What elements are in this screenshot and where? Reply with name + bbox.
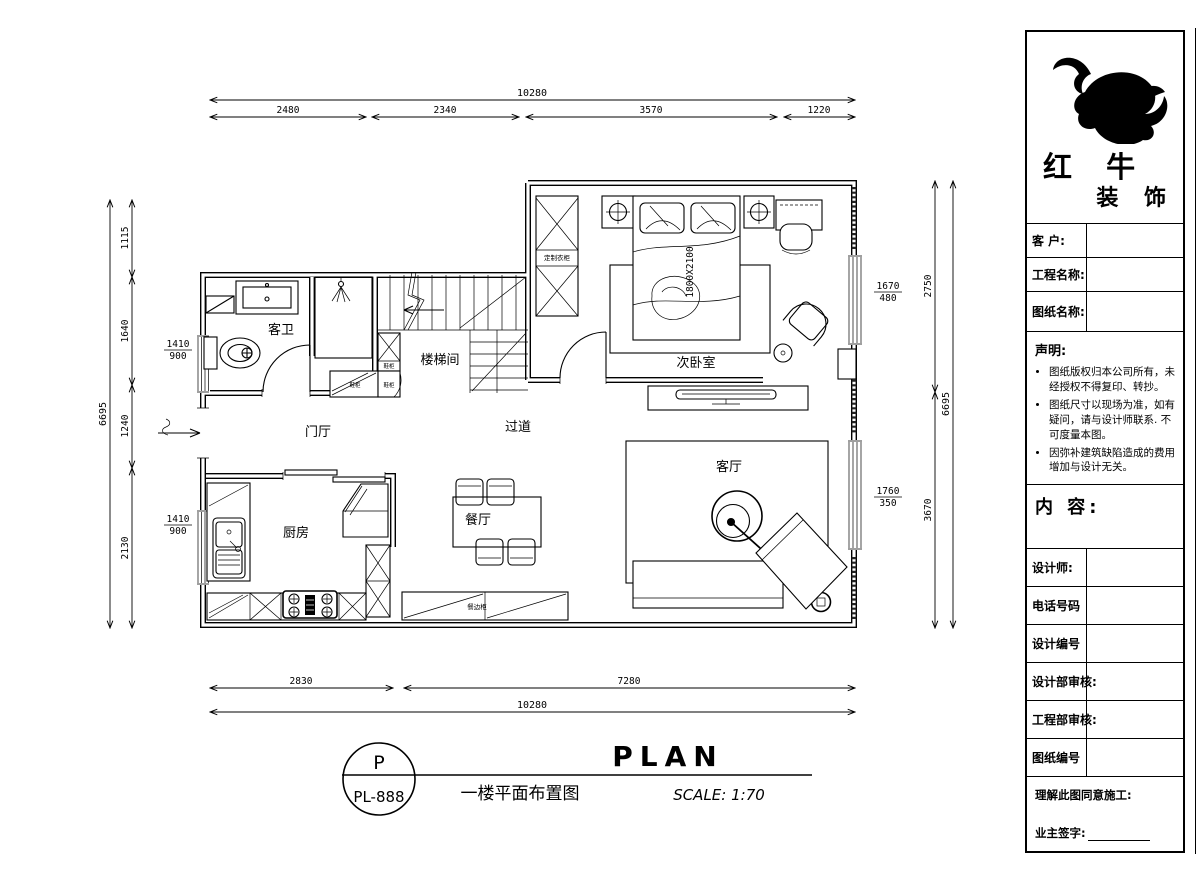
dim-left-4: 2130 [120, 536, 131, 559]
field-label-client: 客 户: [1027, 224, 1087, 257]
field-label-design-review: 设计部审核: [1027, 663, 1087, 700]
svg-text:350: 350 [879, 498, 896, 509]
field-row-design-review: 设计部审核: [1027, 663, 1183, 701]
armchair [783, 296, 834, 346]
signature-line [1088, 828, 1150, 841]
room-label-kitchen: 厨房 [283, 525, 309, 541]
room-label-second-bedroom: 次卧室 [676, 355, 715, 371]
shower [315, 277, 372, 358]
dim-top-2: 2340 [434, 105, 457, 116]
nightstand-left [602, 196, 635, 228]
room-label-dining-room: 餐厅 [465, 512, 491, 528]
sheet-border-line [1195, 28, 1196, 854]
dim-left-total: 6695 [98, 402, 109, 426]
field-label-phone: 电话号码 [1027, 587, 1087, 624]
field-label-project: 工程名称: [1027, 258, 1087, 291]
svg-text:1410: 1410 [167, 514, 190, 525]
callout-bedroom-window: 1670 480 [874, 281, 902, 304]
dim-top-3: 3570 [640, 105, 663, 116]
statement-item: 图纸尺寸以现场为准，如有疑问，请与设计师联系. 不可度量本图。 [1049, 398, 1177, 443]
sheet-scale: SCALE: 1:70 [673, 786, 765, 804]
stair-direction-arrow [404, 306, 444, 314]
callout-kitchen-window: 1410 900 [164, 514, 192, 537]
field-label-drawing: 图纸名称: [1027, 292, 1087, 331]
brand-logo-area: 红 牛 装 饰 [1027, 32, 1183, 224]
field-label-design-no: 设计编号 [1027, 625, 1087, 662]
field-row-client: 客 户: [1027, 224, 1183, 258]
field-label-designer: 设计师: [1027, 549, 1087, 586]
sheet-title-en: PLAN [612, 740, 723, 773]
bull-logo-icon [1045, 40, 1169, 144]
sofa [633, 513, 847, 609]
gas-stove [283, 591, 337, 618]
label-shoe-cabinet-2: 鞋柜 [349, 381, 361, 389]
dim-right-total: 6695 [941, 392, 952, 416]
stamp-letter: P [373, 752, 384, 774]
stool [780, 224, 812, 250]
dim-right-1: 2750 [923, 274, 934, 297]
wall-pier [838, 349, 856, 379]
field-row-design-no: 设计编号 [1027, 625, 1183, 663]
field-row-designer: 设计师: [1027, 549, 1183, 587]
field-row-drawing: 图纸名称: [1027, 292, 1183, 332]
kitchen-corner-cabinet [343, 484, 388, 537]
side-table [774, 344, 792, 362]
room-label-living-room: 客厅 [716, 459, 742, 475]
drawing-sheet: { "plan": { "rooms": { "guest_bath": "客卫… [0, 0, 1200, 870]
title-block: 红 牛 装 饰 客 户: 工程名称: 图纸名称: 声明: 图纸版权归本公司所有，… [1025, 30, 1185, 853]
label-sideboard: 餐边柜 [467, 602, 487, 611]
label-shoe-cabinet-1: 鞋柜 [383, 362, 395, 370]
field-value-design-review [1087, 663, 1183, 700]
tv-cabinet [648, 386, 808, 410]
stamp-number: PL-888 [353, 788, 404, 806]
toilet [204, 337, 260, 369]
dim-bottom-total: 10280 [517, 700, 547, 711]
label-shoe-cabinet-3: 鞋柜 [383, 381, 395, 389]
field-value-designer [1087, 549, 1183, 586]
field-value-drawing-no [1087, 739, 1183, 776]
statement-item: 因弥补建筑缺陷造成的费用增加与设计无关。 [1049, 446, 1177, 476]
dim-top-total: 10280 [517, 88, 547, 99]
field-row-eng-review: 工程部审核: [1027, 701, 1183, 739]
label-bed-size: 1800X2100 [685, 246, 696, 298]
svg-text:1670: 1670 [877, 281, 900, 292]
kitchen-sink-counter [207, 483, 250, 581]
dim-top-1: 2480 [277, 105, 300, 116]
field-value-phone [1087, 587, 1183, 624]
nightstand-right [744, 196, 774, 228]
dim-bottom-1: 2830 [290, 676, 313, 687]
dim-top-4: 1220 [808, 105, 831, 116]
room-label-stairwell: 楼梯间 [420, 353, 459, 368]
dim-left-3: 1240 [120, 414, 131, 437]
field-value-project [1087, 258, 1183, 291]
corner-shelf [206, 296, 234, 313]
dining-furniture [402, 479, 568, 620]
statement-item: 图纸版权归本公司所有，未经授权不得复印、转抄。 [1049, 365, 1177, 395]
room-label-foyer: 门厅 [305, 425, 331, 440]
content-block: 内 容: [1027, 485, 1183, 549]
bathroom-vanity [236, 281, 298, 314]
room-label-guest-bath: 客卫 [268, 322, 294, 338]
field-value-drawing [1087, 292, 1183, 331]
kitchen-tall-cabinet [366, 545, 390, 617]
svg-text:1410: 1410 [167, 339, 190, 350]
field-value-eng-review [1087, 701, 1183, 738]
kitchen-furniture [207, 483, 390, 620]
svg-text:1760: 1760 [877, 486, 900, 497]
approval-sign-label: 业主签字: [1035, 825, 1086, 841]
field-value-client [1087, 224, 1183, 257]
dim-left-1: 1115 [120, 227, 131, 250]
content-title: 内 容: [1035, 497, 1100, 518]
svg-text:900: 900 [169, 526, 186, 537]
callout-living-window: 1760 350 [874, 486, 902, 509]
field-value-design-no [1087, 625, 1183, 662]
brand-name-line2: 装 饰 [1096, 180, 1175, 212]
door-bath [263, 345, 310, 392]
field-row-phone: 电话号码 [1027, 587, 1183, 625]
callout-bath-window: 1410 900 [164, 339, 192, 362]
statement-block: 声明: 图纸版权归本公司所有，未经授权不得复印、转抄。 图纸尺寸以现场为准，如有… [1027, 332, 1183, 485]
statement-list: 图纸版权归本公司所有，未经授权不得复印、转抄。 图纸尺寸以现场为准，如有疑问，请… [1035, 365, 1177, 475]
label-custom-wardrobe: 定制衣柜 [544, 253, 571, 262]
svg-text:480: 480 [879, 293, 896, 304]
sheet-footer: P PL-888 PLAN 一楼平面布置图 SCALE: 1:70 [342, 740, 812, 815]
svg-text:900: 900 [169, 351, 186, 362]
field-row-drawing-no: 图纸编号 [1027, 739, 1183, 777]
field-label-drawing-no: 图纸编号 [1027, 739, 1087, 776]
room-label-corridor: 过道 [505, 420, 531, 435]
field-label-eng-review: 工程部审核: [1027, 701, 1087, 738]
entry-arrow [158, 419, 200, 437]
floor-plan-drawing: 客卫 楼梯间 次卧室 门厅 过道 客厅 厨房 餐厅 定制衣柜 鞋柜 鞋柜 鞋柜 … [0, 0, 1010, 870]
dim-right-2: 3670 [923, 498, 934, 521]
dim-left-2: 1640 [120, 319, 131, 342]
statement-title: 声明: [1035, 340, 1177, 359]
door-bedroom [560, 332, 606, 378]
field-row-project: 工程名称: [1027, 258, 1183, 292]
desk [776, 200, 822, 254]
dim-bottom-2: 7280 [618, 676, 641, 687]
sheet-title-cn: 一楼平面布置图 [461, 784, 580, 804]
approval-agree-text: 理解此图同意施工: [1035, 787, 1175, 803]
approval-block: 理解此图同意施工: 业主签字: [1027, 777, 1183, 851]
